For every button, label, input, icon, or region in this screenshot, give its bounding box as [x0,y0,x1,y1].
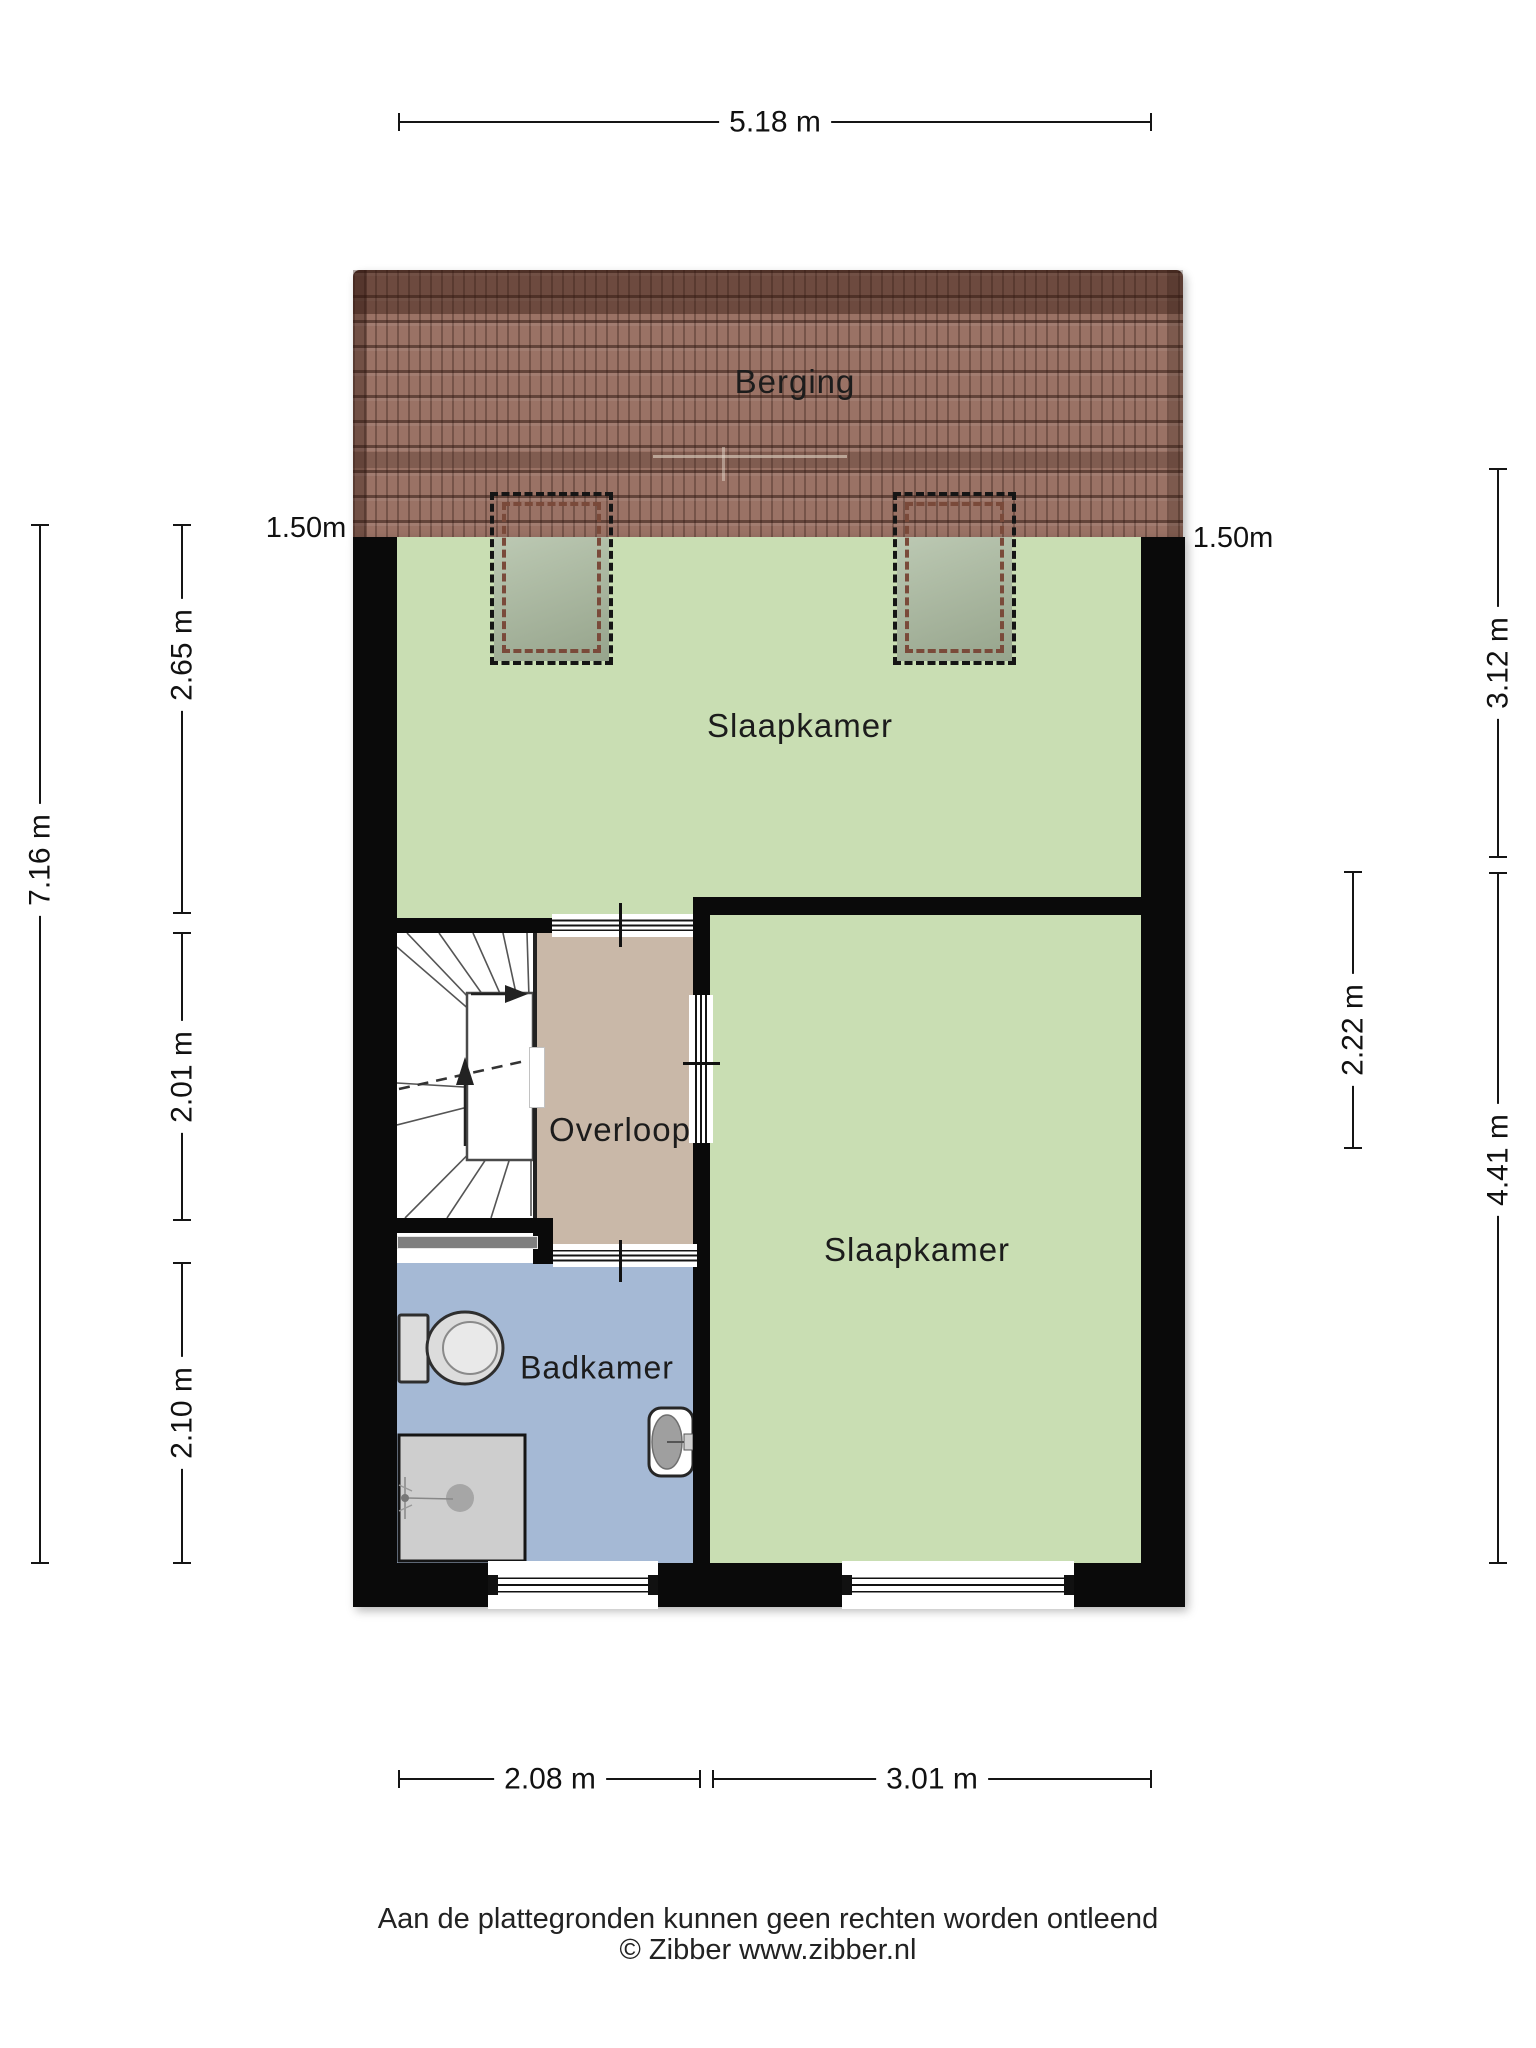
room-label-overloop: Overloop [549,1111,691,1149]
wall-exterior-left [353,537,397,1607]
dim-label-bottom-1: 2.08 m [494,1763,606,1796]
footer-credit: © Zibber www.zibber.nl [0,1934,1536,1967]
passage-tick-right [683,1062,720,1065]
room-label-badkamer: Badkamer [520,1350,674,1387]
dim-label-bottom-2: 3.01 m [876,1763,988,1796]
room-label-berging: Berging [735,363,856,401]
knee-height-label-left: 1.50m [266,513,347,545]
roof-edge-left [353,270,367,537]
passage-tick-bottom [619,1240,622,1282]
passage-overloop-slaapkamer-top [552,914,693,937]
dim-label-left-inner-1: 2.65 m [166,599,199,711]
bathroom-fixtures [397,1263,693,1563]
passage-overloop-slaapkamer-right [689,995,713,1143]
wall-stairwell-top [397,918,552,933]
dim-label-left-inner-2: 2.01 m [166,1021,199,1133]
wall-stairwell-bottom [397,1218,543,1233]
roof-berging [353,270,1183,537]
window-badkamer [488,1561,658,1609]
stair-stringer-box [467,993,533,1160]
sink-icon [649,1408,693,1476]
dim-label-right-inner: 2.22 m [1337,974,1370,1086]
passage-tick-top [619,903,622,947]
staircase [397,933,533,1218]
footer-disclaimer: Aan de plattegronden kunnen geen rechten… [0,1903,1536,1936]
dim-label-left-outer: 7.16 m [24,804,57,916]
stair-handrail [529,1047,545,1108]
dim-label-right-outer-2: 4.41 m [1482,1104,1515,1216]
room-label-slaapkamer-top: Slaapkamer [707,707,893,745]
wall-bathroom-bedroom [693,1143,710,1563]
wall-exterior-right [1141,537,1185,1607]
knee-height-label-right: 1.50m [1193,523,1274,555]
passage-overloop-badkamer [553,1244,697,1267]
room-label-slaapkamer-right: Slaapkamer [824,1231,1010,1269]
stairwell-ledge [397,1236,538,1249]
roof-ridge-band [353,270,1183,314]
dim-line-right-outer-2 [1497,873,1499,1563]
dim-line-left-outer [39,525,41,1563]
dim-label-right-outer-1: 3.12 m [1482,607,1515,719]
roof-edge-right [1169,270,1183,537]
roof-seam-tick [722,447,725,481]
toilet-icon [399,1312,503,1384]
dormer-right-inner-outline [905,502,1004,653]
dim-label-top: 5.18 m [719,106,831,139]
window-slaapkamer [842,1561,1074,1609]
wall-bedroom-top [693,897,1143,915]
room-overloop [537,933,695,1248]
stair-rail-wall-lower [533,1108,537,1218]
shower-icon [399,1435,525,1561]
dim-line-left-inner-1 [181,525,183,913]
roof-seam-line [653,455,847,458]
stair-rail-wall-upper [533,933,537,1047]
wall-overloop-bedroom-upper [693,897,710,995]
floorplan-page: 5.18 m 7.16 m 2.65 m 2.01 m 2.10 m 3.12 … [0,0,1536,2048]
dormer-left-inner-outline [502,502,601,653]
dim-label-left-inner-3: 2.10 m [166,1357,199,1469]
